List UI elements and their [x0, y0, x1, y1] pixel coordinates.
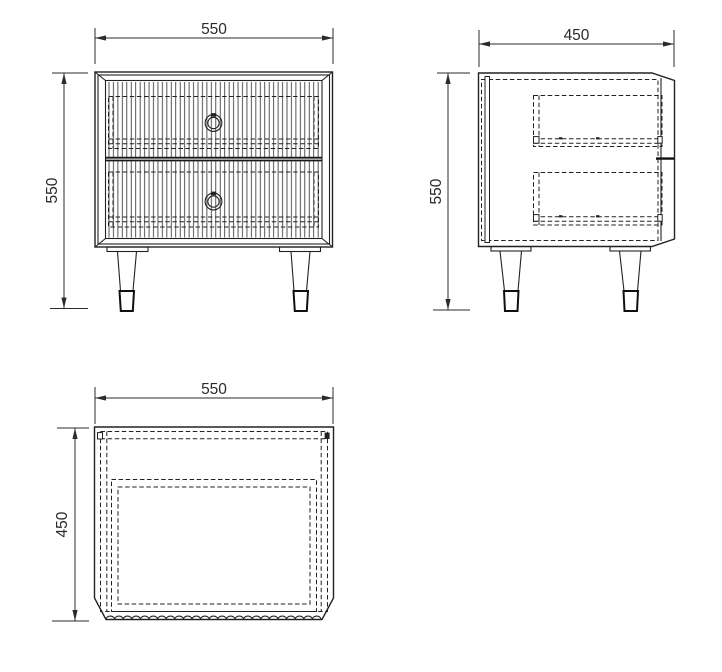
- arrow-up-icon: [61, 73, 66, 84]
- side-height-dim-label: 550: [428, 178, 445, 204]
- back-panel-edge: [485, 77, 490, 243]
- side-width-dimension: 450: [479, 27, 674, 67]
- side-width-dim-label: 450: [564, 27, 590, 44]
- top-width-dim-label: 550: [201, 381, 227, 398]
- side-right-leg: [610, 247, 651, 312]
- front-left-leg: [107, 247, 148, 311]
- front-width-dimension: 550: [95, 21, 333, 64]
- front-height-dim-label: 550: [44, 177, 61, 203]
- arrow-down-icon: [61, 298, 66, 309]
- drawer-runner-mark: [658, 137, 662, 144]
- side-view: 450 550: [428, 27, 675, 311]
- technical-drawing-page: 550 550: [0, 0, 722, 672]
- side-left-leg: [491, 247, 531, 312]
- front-width-dim-label: 550: [201, 21, 227, 38]
- arrow-right-icon: [663, 41, 674, 46]
- front-bottom-drawer: [107, 161, 321, 238]
- front-height-dimension: 550: [44, 73, 88, 309]
- arrow-up-icon: [445, 73, 450, 84]
- technical-drawing-canvas: 550 550: [0, 0, 722, 672]
- drawer-runner-mark: [534, 215, 540, 222]
- arrow-down-icon: [72, 610, 77, 621]
- back-panel-mark: [325, 433, 330, 439]
- front-view: 550 550: [44, 21, 333, 311]
- back-panel-mark: [98, 433, 103, 439]
- side-height-dimension: 550: [428, 73, 470, 310]
- side-bottom-drawer: [534, 173, 663, 226]
- arrow-up-icon: [72, 428, 77, 439]
- top-view: 550 450: [52, 381, 334, 621]
- drawer-runner-mark: [658, 215, 662, 222]
- top-depth-dim-label: 450: [54, 511, 71, 537]
- arrow-right-icon: [322, 35, 333, 40]
- leg-foot-cap: [120, 291, 135, 311]
- front-right-leg: [280, 247, 321, 311]
- drawer-runner-mark: [534, 137, 540, 144]
- arrow-left-icon: [95, 395, 106, 400]
- top-depth-dimension: 450: [52, 428, 89, 621]
- top-body: [95, 427, 334, 620]
- side-body: [479, 73, 675, 247]
- top-drawer-outline: [112, 480, 317, 612]
- side-top-drawer: [534, 96, 663, 147]
- leg-foot-cap: [294, 291, 309, 311]
- leg-foot-cap: [624, 291, 639, 311]
- arrow-left-icon: [95, 35, 106, 40]
- arrow-down-icon: [445, 299, 450, 310]
- arrow-left-icon: [479, 41, 490, 46]
- front-top-drawer: [107, 82, 321, 157]
- fluted-front-texture: [107, 82, 321, 157]
- leg-foot-cap: [504, 291, 519, 311]
- arrow-right-icon: [322, 395, 333, 400]
- top-width-dimension: 550: [95, 381, 333, 424]
